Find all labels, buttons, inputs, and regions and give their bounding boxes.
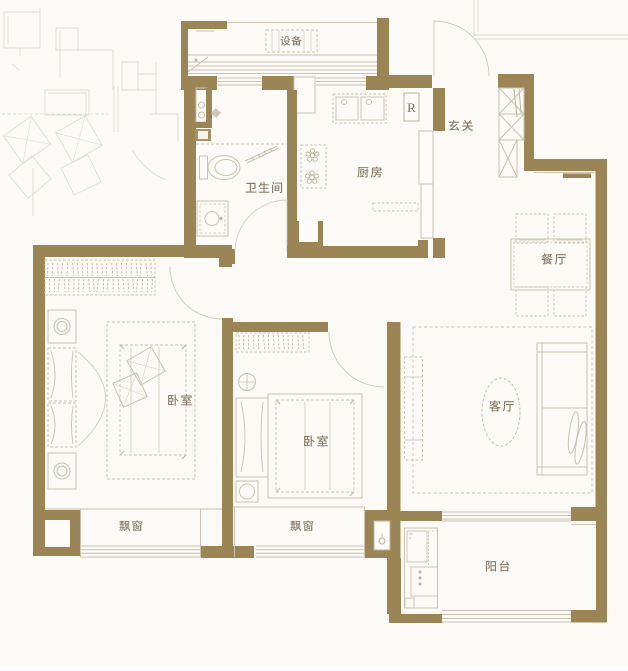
svg-text:R: R	[407, 100, 416, 115]
